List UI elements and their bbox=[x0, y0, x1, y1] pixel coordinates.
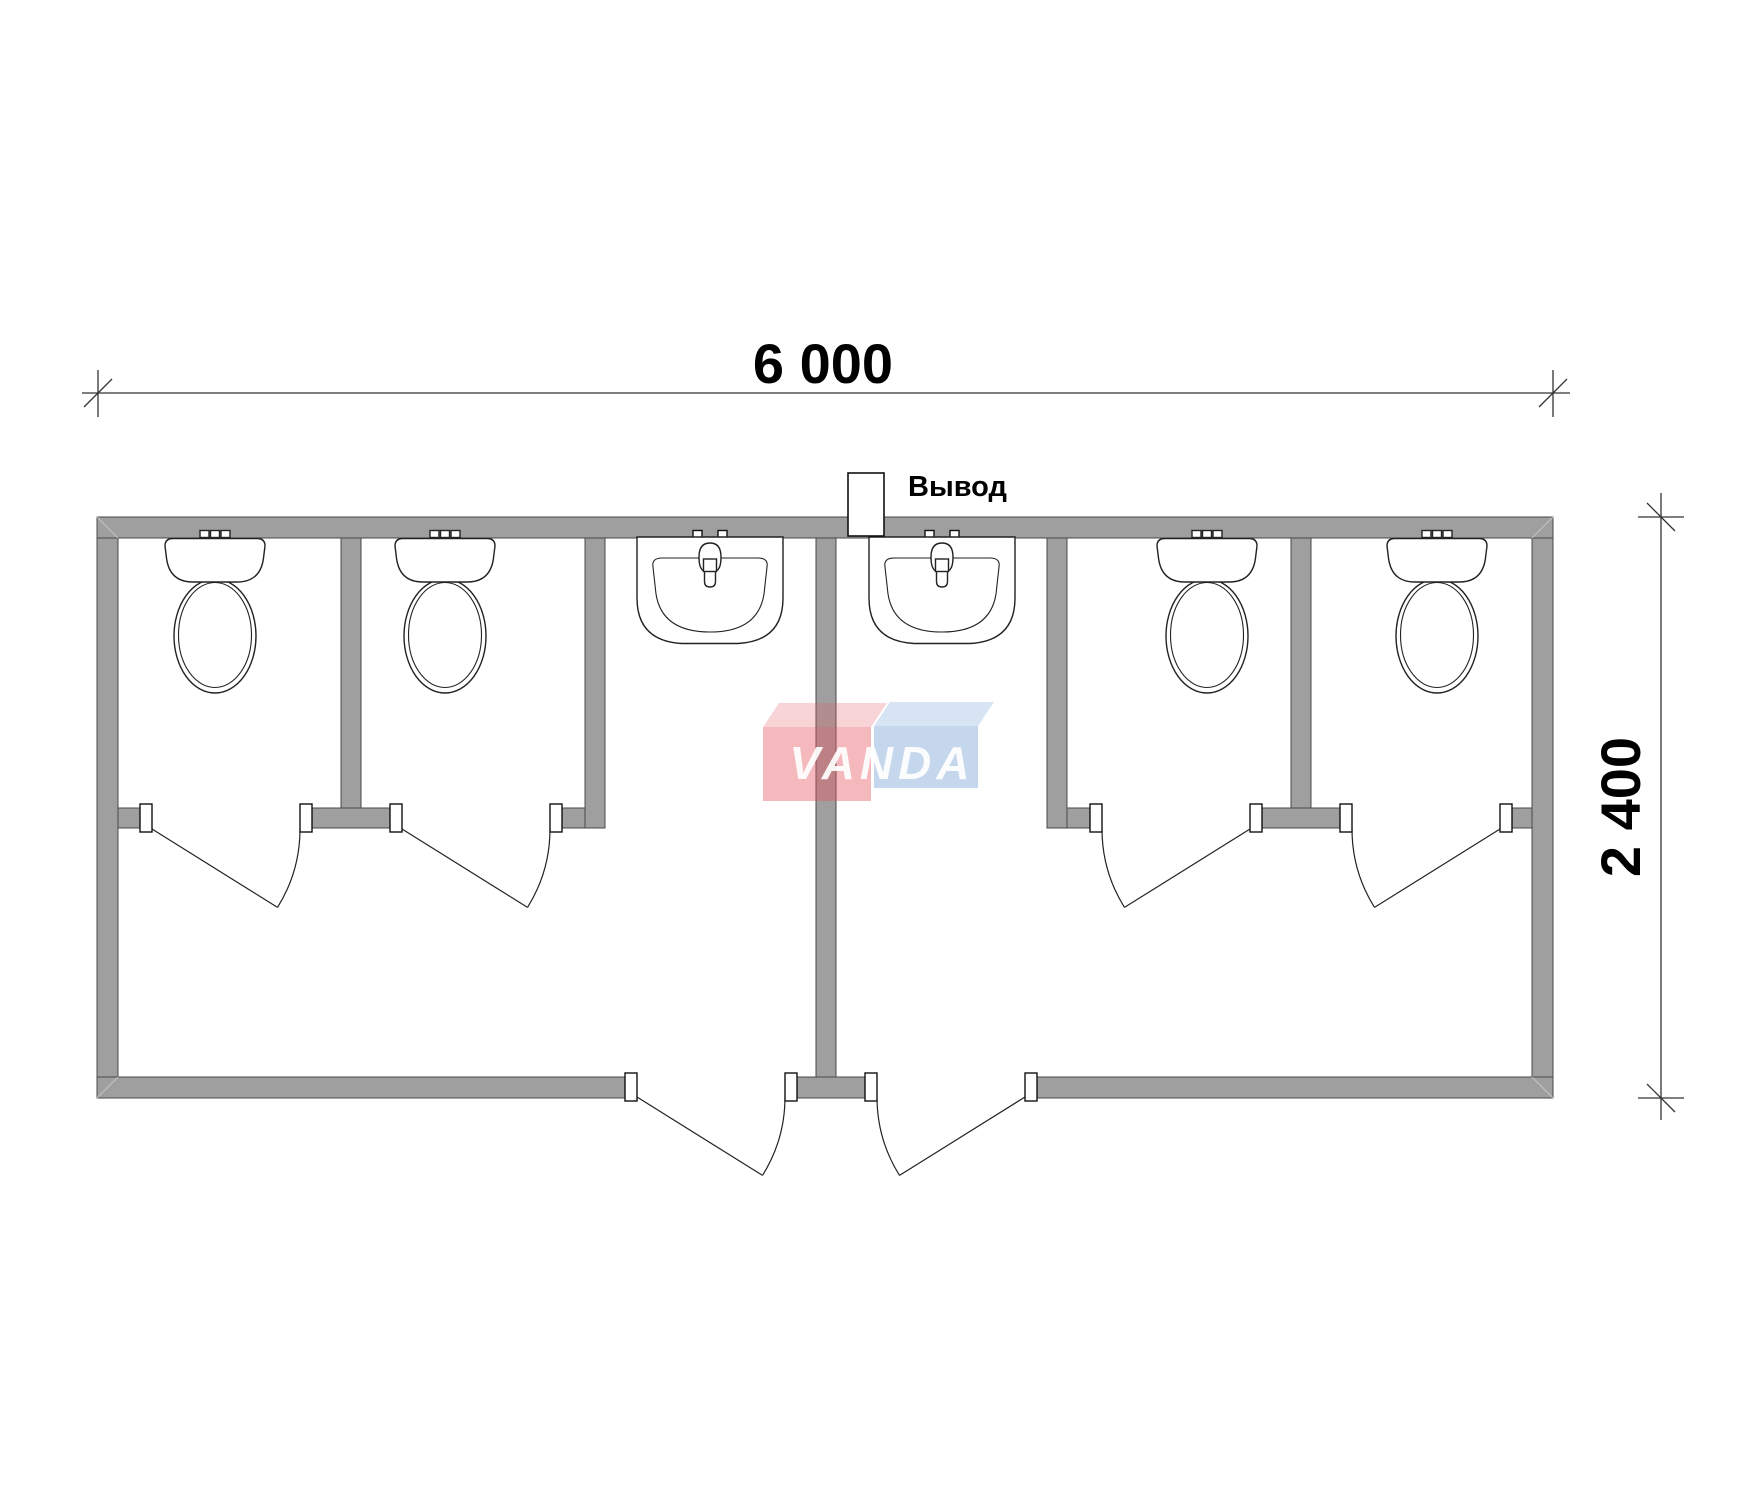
partition-stall1-stall2 bbox=[341, 538, 361, 808]
stall-door-1 bbox=[152, 829, 300, 907]
jamb bbox=[140, 804, 152, 832]
partition-walls bbox=[118, 538, 1532, 1077]
dimension-height: 2 400 bbox=[1589, 493, 1684, 1120]
jamb bbox=[1025, 1073, 1037, 1101]
stall-door-4 bbox=[1352, 829, 1500, 907]
toilet-3 bbox=[1157, 531, 1257, 694]
logo-red-box-top bbox=[763, 703, 887, 727]
washbasin-2 bbox=[869, 531, 1015, 644]
stall-door-3 bbox=[1102, 829, 1250, 907]
dimension-width: 6 000 bbox=[82, 332, 1570, 417]
jamb bbox=[1500, 804, 1512, 832]
watermark-text: VANDA bbox=[789, 737, 974, 789]
jamb bbox=[550, 804, 562, 832]
partition-stall3-stall4 bbox=[1291, 538, 1311, 808]
washbasin-1 bbox=[637, 531, 783, 644]
wall-bottom-right-segment bbox=[1037, 1077, 1553, 1098]
partition-stall2-sinkroom bbox=[585, 538, 605, 828]
logo-blue-box-top bbox=[874, 702, 994, 726]
jamb bbox=[865, 1073, 877, 1101]
outlet-label: Вывод bbox=[908, 471, 1007, 503]
wall-left bbox=[97, 538, 118, 1098]
stall-front-stub bbox=[118, 808, 140, 828]
jamb bbox=[300, 804, 312, 832]
toilet-4 bbox=[1387, 531, 1487, 694]
wall-bottom-left-segment bbox=[97, 1077, 625, 1098]
dimension-height-label: 2 400 bbox=[1589, 737, 1652, 877]
wall-top bbox=[97, 517, 1553, 538]
floor-plan-page: Вывод 6 000 2 400 VANDA bbox=[0, 0, 1763, 1503]
floor-plan-svg: Вывод 6 000 2 400 VANDA bbox=[0, 0, 1763, 1503]
jamb bbox=[625, 1073, 637, 1101]
jamb bbox=[1250, 804, 1262, 832]
partition-sinkroom-stall3 bbox=[1047, 538, 1067, 828]
outlet-pipe bbox=[848, 473, 884, 536]
wall-bottom-center-stub bbox=[797, 1077, 865, 1098]
wall-right bbox=[1532, 538, 1553, 1098]
entrance-door-left bbox=[637, 1097, 785, 1175]
dimension-width-label: 6 000 bbox=[753, 332, 893, 395]
stall-front-stub bbox=[1067, 808, 1090, 828]
partition-center bbox=[816, 538, 836, 1077]
stall-front-tee bbox=[312, 808, 390, 828]
jamb bbox=[785, 1073, 797, 1101]
jamb bbox=[390, 804, 402, 832]
entrance-door-right bbox=[877, 1097, 1025, 1175]
jamb bbox=[1340, 804, 1352, 832]
jamb bbox=[1090, 804, 1102, 832]
stall-front-stub bbox=[1512, 808, 1532, 828]
stall-front-tee bbox=[1262, 808, 1340, 828]
toilet-1 bbox=[165, 531, 265, 694]
stall-door-2 bbox=[402, 829, 550, 907]
vanda-watermark: VANDA bbox=[763, 702, 994, 801]
toilet-2 bbox=[395, 531, 495, 694]
stall-front-stub bbox=[562, 808, 585, 828]
